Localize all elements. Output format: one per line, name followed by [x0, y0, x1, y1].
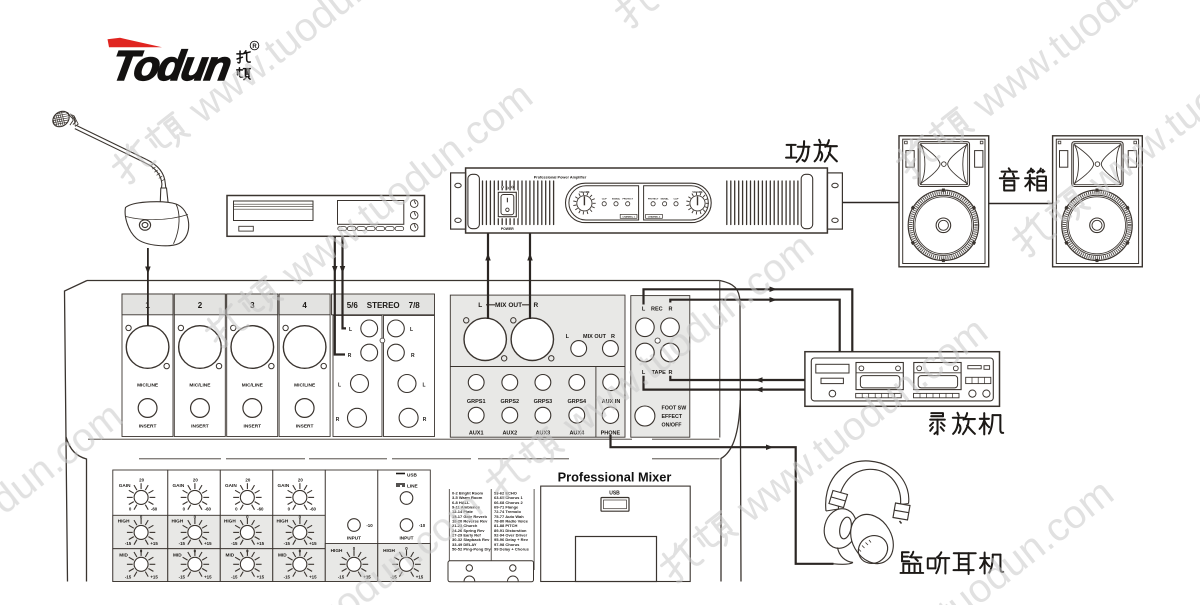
svg-text:REC: REC	[651, 307, 663, 313]
svg-text:USB: USB	[407, 473, 418, 478]
svg-text:MID: MID	[119, 552, 128, 557]
svg-text:99 Delay + Chorus: 99 Delay + Chorus	[494, 546, 530, 551]
svg-text:20: 20	[139, 478, 144, 483]
svg-text:+15: +15	[150, 575, 158, 580]
svg-text:R: R	[611, 334, 615, 340]
svg-text:5/6: 5/6	[347, 301, 359, 310]
svg-text:GAIN: GAIN	[172, 483, 184, 488]
svg-text:+15: +15	[257, 541, 265, 546]
svg-text:INSERT: INSERT	[244, 424, 262, 430]
svg-text:GAIN: GAIN	[277, 483, 289, 488]
svg-text:MIC/LINE: MIC/LINE	[294, 383, 316, 389]
svg-text:+15: +15	[204, 541, 212, 546]
svg-text:MIX OUT: MIX OUT	[583, 334, 607, 340]
svg-text:L: L	[422, 383, 425, 389]
svg-text:FOOT SW: FOOT SW	[662, 406, 687, 412]
svg-text:VOLUME: VOLUME	[579, 191, 590, 194]
svg-text:INSERT: INSERT	[191, 424, 209, 430]
svg-text:MIC/LINE: MIC/LINE	[137, 383, 159, 389]
svg-text:20: 20	[193, 478, 198, 483]
svg-text:USB: USB	[609, 490, 620, 496]
svg-text:POWER: POWER	[501, 227, 514, 231]
svg-text:MID: MID	[226, 552, 235, 557]
svg-text:50-52 Ping-Pong Dly: 50-52 Ping-Pong Dly	[452, 546, 491, 551]
svg-text:HIGH: HIGH	[224, 518, 236, 523]
svg-text:20: 20	[245, 478, 250, 483]
svg-text:7/8: 7/8	[409, 301, 421, 310]
svg-text:GRPS1: GRPS1	[467, 399, 486, 405]
svg-text:+15: +15	[257, 575, 265, 580]
svg-text:MIC/LINE: MIC/LINE	[189, 383, 211, 389]
svg-text:Professional Power Amplifier: Professional Power Amplifier	[534, 175, 587, 179]
svg-text:MIC/LINE: MIC/LINE	[242, 383, 264, 389]
svg-text:AUX1: AUX1	[469, 431, 484, 437]
svg-text:LINE: LINE	[407, 484, 418, 489]
svg-text:R: R	[411, 353, 415, 359]
svg-text:GAIN: GAIN	[119, 483, 131, 488]
svg-text:L: L	[349, 327, 352, 333]
svg-text:MIX OUT: MIX OUT	[495, 302, 522, 309]
svg-text:EFFECT: EFFECT	[662, 414, 683, 420]
svg-text:PROTECT: PROTECT	[648, 199, 659, 201]
svg-text:AUX2: AUX2	[502, 431, 517, 437]
svg-text:L: L	[410, 327, 413, 333]
svg-text:4: 4	[302, 301, 307, 310]
svg-text:R: R	[336, 417, 340, 423]
svg-text:ON/OFF: ON/OFF	[662, 423, 683, 429]
svg-text:CLIP: CLIP	[602, 199, 608, 201]
svg-text:HIGH: HIGH	[171, 518, 183, 523]
svg-text:-60: -60	[257, 506, 264, 511]
svg-text:-15: -15	[125, 575, 132, 580]
svg-text:CLIP: CLIP	[674, 199, 680, 201]
svg-text:R: R	[423, 417, 427, 423]
svg-text:INSERT: INSERT	[139, 424, 157, 430]
svg-text:L: L	[338, 383, 341, 389]
svg-text:R: R	[348, 353, 352, 359]
svg-text:-60: -60	[205, 506, 212, 511]
svg-text:2: 2	[198, 301, 203, 310]
svg-text:R: R	[669, 307, 673, 313]
svg-text:-15: -15	[231, 575, 238, 580]
svg-text:-60: -60	[151, 506, 158, 511]
svg-text:SIGNAL: SIGNAL	[660, 198, 669, 201]
svg-text:CHANNEL 1: CHANNEL 1	[622, 215, 635, 218]
svg-text:HIGH: HIGH	[276, 518, 288, 523]
svg-text:MID: MID	[173, 552, 182, 557]
svg-text:VOLUME: VOLUME	[692, 191, 703, 194]
svg-text:-10: -10	[366, 523, 373, 528]
svg-text:STEREO: STEREO	[367, 301, 400, 310]
svg-text:-15: -15	[125, 541, 132, 546]
svg-text:PROTECT: PROTECT	[622, 199, 633, 201]
svg-text:CHANNEL 2: CHANNEL 2	[648, 215, 661, 218]
svg-text:+15: +15	[309, 575, 317, 580]
svg-text:-15: -15	[231, 541, 238, 546]
svg-text:GAIN: GAIN	[225, 483, 237, 488]
svg-text:-15: -15	[284, 575, 291, 580]
svg-text:-15: -15	[179, 575, 186, 580]
svg-text:HIGH: HIGH	[331, 548, 343, 553]
svg-text:INPUT: INPUT	[347, 536, 361, 541]
svg-text:HIGH: HIGH	[118, 518, 130, 523]
svg-text:-15: -15	[179, 541, 186, 546]
svg-text:+15: +15	[204, 575, 212, 580]
svg-text:-15: -15	[284, 541, 291, 546]
svg-text:GRPS2: GRPS2	[500, 399, 519, 405]
svg-text:L: L	[478, 302, 482, 309]
svg-text:SIGNAL: SIGNAL	[612, 198, 621, 201]
svg-text:INSERT: INSERT	[296, 424, 314, 430]
svg-text:20: 20	[298, 478, 303, 483]
svg-text:MID: MID	[278, 552, 287, 557]
svg-text:+15: +15	[309, 541, 317, 546]
svg-text:Professional Mixer: Professional Mixer	[558, 470, 672, 485]
svg-text:R: R	[533, 302, 538, 309]
svg-text:-60: -60	[310, 506, 317, 511]
svg-text:GRPS3: GRPS3	[534, 399, 553, 405]
svg-text:+15: +15	[150, 541, 158, 546]
